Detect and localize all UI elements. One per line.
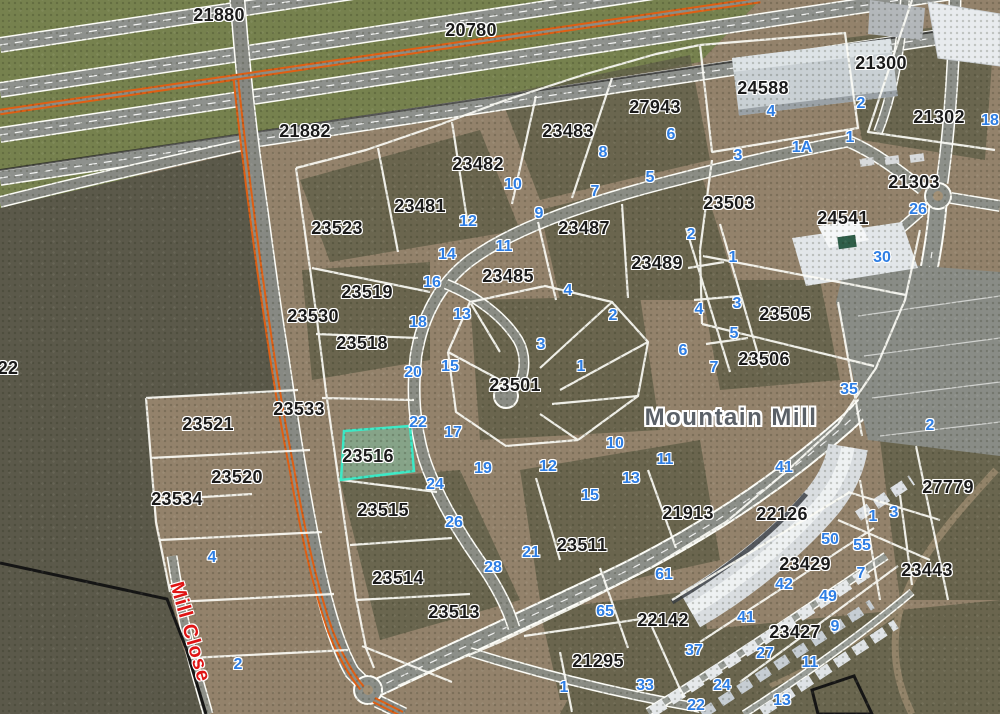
highlighted-parcel[interactable] [341,426,414,480]
roundabout-north [925,183,951,209]
area-label: Mountain Mill [645,406,818,430]
map-canvas[interactable] [0,0,1000,714]
cul-de-sac [494,384,518,408]
satellite-map-view[interactable]: 2188020780218822458821300279432348321302… [0,0,1000,714]
